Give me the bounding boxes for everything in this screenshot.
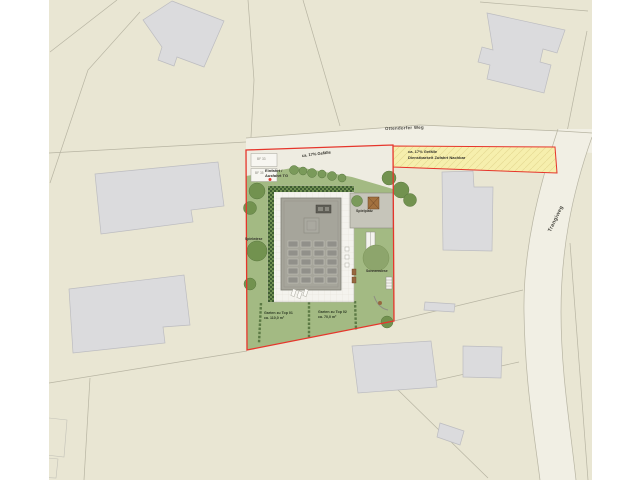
bush-icon [352,196,363,207]
bush-icon [328,172,337,181]
label-garden2-name: Garten zu Top 02 [318,310,347,314]
roof-vent-detail [325,207,329,211]
tree-icon [244,202,257,215]
main-building [281,198,349,299]
tree-icon [382,171,396,185]
tree-icon [363,245,389,271]
site-plan-drawing: Ottendorfer Weg Trangiweg ca. 17% Gefäll… [0,0,640,480]
building-footprint [463,346,502,378]
label-sun-meadow: Sonnenwiese [366,269,388,273]
garage-entry-marker [269,178,272,181]
tree-icon [404,194,417,207]
tree-icon [244,278,256,290]
tree-icon [247,241,267,261]
hedge-strip-west [268,186,274,302]
bush-icon [299,167,307,175]
ladder-icon [386,277,392,289]
label-playground: Spielplatz [356,209,373,213]
label-garage-entry-2: Ausfahrt TG [265,173,288,178]
play-equipment-icon [368,197,379,209]
bush-icon [318,170,326,178]
label-parking-2: BF 35 [255,171,264,175]
tree-icon [249,183,265,199]
label-easement-2: Dienstbarkeit Zufahrt Nachbar [408,155,466,160]
bench-icon [352,277,356,283]
label-garden1-size: ca. 110,0 m² [264,316,285,320]
play-post-icon [378,301,382,305]
roof-hatch [304,218,319,233]
page-margin-right [592,0,640,480]
bench-icon [352,269,356,275]
label-garden1-name: Garten zu Top 01 [264,311,293,315]
bush-icon [338,174,346,182]
planter-squares [345,247,349,267]
label-garden2-size: ca. 70,0 m² [318,315,337,319]
page-margin-left [0,0,49,480]
site-plan-canvas: Ottendorfer Weg Trangiweg ca. 17% Gefäll… [0,0,640,480]
bush-icon [308,169,317,178]
hedge-strip-north [268,186,354,192]
building-footprint [352,341,437,393]
bush-icon [290,166,299,175]
roof-vent-detail [318,207,323,211]
label-easement-1: ca. 17% Gefälle [408,149,438,154]
building-footprint [424,302,455,312]
label-play-meadow: Spielwiese [245,237,262,241]
label-parking-1: BF 33 [257,157,266,161]
